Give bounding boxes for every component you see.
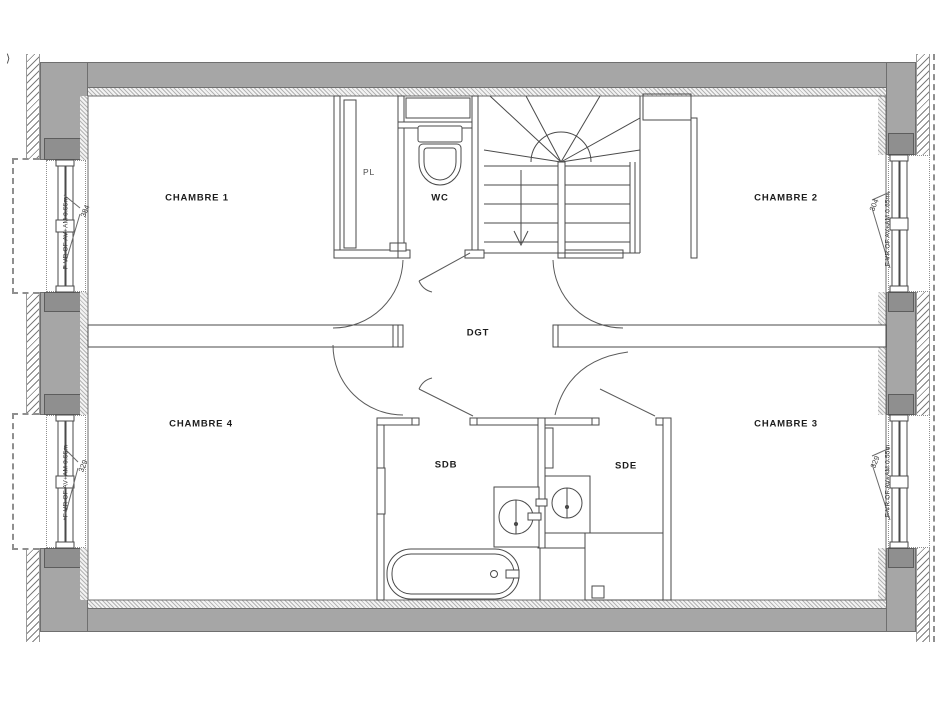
- door-jamb: [592, 418, 599, 425]
- door-arc-chambre3: [555, 352, 628, 415]
- mid-wall-right: [553, 325, 886, 347]
- room-label-sdb: SDB: [435, 460, 457, 471]
- door-jamb: [412, 418, 419, 425]
- wc-west-wall: [398, 96, 404, 258]
- bathtub: [387, 549, 519, 599]
- stair-alcove: [643, 94, 691, 120]
- shower: [540, 533, 663, 600]
- sde-basin-faucet: [536, 499, 547, 506]
- chambre2-west-wall: [691, 118, 697, 258]
- plan-linework: [0, 0, 940, 705]
- shower-drain: [592, 586, 604, 598]
- toilet: [418, 126, 462, 185]
- room-label-chambre4: CHAMBRE 4: [169, 419, 233, 430]
- window-right-bottom: [890, 415, 908, 548]
- door-arc-chambre4: [333, 345, 403, 415]
- window-right-top: [890, 155, 908, 292]
- door-arc-chambre1: [333, 260, 403, 328]
- sde-east-wall: [663, 418, 671, 600]
- window-annotation-right-top: F VR OF AV+AM 0.65m: [885, 194, 892, 267]
- window-annotation-left-top: F VR OF AV+AM 0.55m: [63, 197, 70, 270]
- mid-wall-right-cap: [553, 325, 558, 347]
- door-leaf-wc: [419, 253, 470, 281]
- floor-plan: ⟩: [0, 0, 940, 705]
- door-leaf-sdb-tip-arc: [419, 378, 432, 389]
- partition-walls: [88, 96, 886, 600]
- mid-wall-left: [88, 325, 403, 347]
- window-annotation-right-bottom: F VR OF AV+AM 0.55m: [885, 445, 892, 518]
- pl-shelf: [344, 100, 356, 248]
- door-jamb: [390, 243, 398, 251]
- door-jamb: [470, 418, 477, 425]
- wc-east-wall: [472, 96, 478, 258]
- bathtub-faucet: [506, 570, 519, 578]
- sdb-basin-faucet: [528, 513, 541, 520]
- door-leaf-sdb: [419, 389, 473, 416]
- room-label-dgt: DGT: [467, 328, 489, 339]
- duct-above-wc: [406, 98, 470, 118]
- room-label-chambre3: CHAMBRE 3: [754, 419, 818, 430]
- room-label-wc: WC: [431, 193, 448, 204]
- interior-face-outline: [88, 96, 886, 600]
- room-label-chambre2: CHAMBRE 2: [754, 193, 818, 204]
- stair-direction-arrow: [514, 170, 528, 245]
- bathtub-drain: [491, 571, 498, 578]
- sdb-top-wall-west: [377, 418, 412, 425]
- radiator-sde: [545, 428, 553, 468]
- stair-winders: [484, 96, 640, 162]
- south-wall-stub-stair-east: [558, 250, 623, 258]
- mid-wall-left-cap: [393, 325, 398, 347]
- sdb-washbasin: [494, 487, 541, 547]
- room-label-pl: PL: [363, 167, 375, 177]
- window-annotation-left-bottom: F VR OF AV+AM 0.55m: [63, 445, 70, 518]
- stairs: [484, 96, 640, 258]
- door-jamb: [398, 243, 406, 251]
- room-label-chambre1: CHAMBRE 1: [165, 193, 229, 204]
- pl-west-wall: [334, 96, 340, 258]
- radiator-sdb: [377, 468, 385, 514]
- sde-top-wall: [545, 418, 592, 425]
- door-arc-chambre2: [553, 260, 623, 328]
- door-leaf-wc-tip-arc: [419, 281, 432, 292]
- sdb-top-wall-east: [477, 418, 538, 425]
- door-jamb: [656, 418, 663, 425]
- room-label-sde: SDE: [615, 461, 637, 472]
- door-leaf-sde: [600, 389, 655, 416]
